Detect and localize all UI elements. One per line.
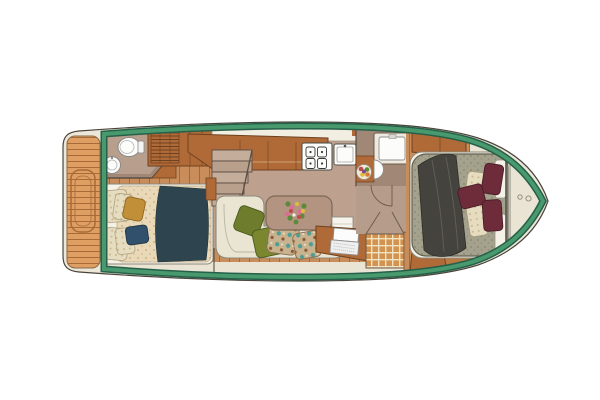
floorplan-canvas [0, 0, 600, 400]
aft-bed [101, 184, 213, 264]
fruit-bowl-icon [357, 165, 372, 180]
navy-pillow [125, 225, 149, 246]
stair-newel [206, 178, 216, 200]
laptop-icon [330, 228, 360, 255]
coffee-table [266, 196, 332, 230]
deck-fitting [526, 196, 531, 201]
stair-tread [212, 161, 252, 172]
stair-tread [212, 150, 252, 161]
stair-tread [212, 172, 248, 183]
vanity-sink-icon [374, 133, 410, 164]
stair-tread [212, 183, 244, 194]
companionway-floor [356, 186, 412, 234]
saloon [188, 124, 374, 276]
deck-fitting [518, 195, 522, 199]
aft-deck [67, 136, 100, 268]
cooktop-icon [302, 143, 332, 170]
teal-throw [155, 186, 208, 262]
burgundy-pillow [481, 163, 504, 196]
gold-pillow [122, 196, 146, 222]
forward-bed [410, 152, 510, 258]
louvered-door [151, 133, 179, 163]
galley-sink-icon [334, 144, 356, 165]
shower-grate [366, 234, 404, 268]
burgundy-pillow [482, 199, 503, 231]
yacht-floorplan [0, 0, 600, 400]
